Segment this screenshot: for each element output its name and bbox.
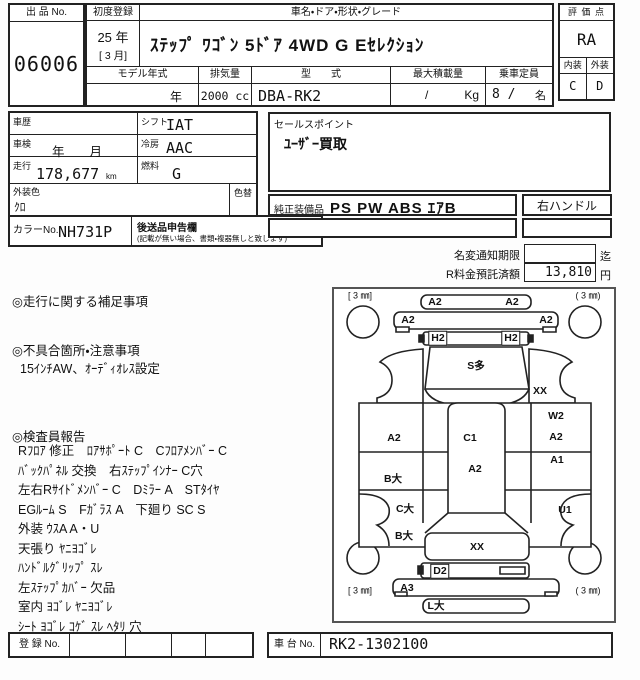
history-cell: 車歴 <box>10 113 138 135</box>
fuel-label: 燃料 <box>141 159 159 172</box>
color-no-label: カラーNo. <box>13 221 59 236</box>
damage-code: A2 <box>428 297 441 308</box>
damage-code: L大 <box>428 601 445 612</box>
damage-code: S多 <box>467 361 485 372</box>
fuel-value: G <box>172 165 181 183</box>
inspector-line: 外装 ｳｽA A・U <box>18 520 227 540</box>
mileage-value: 178,677 <box>36 165 99 183</box>
damage-code: A2 <box>539 315 552 326</box>
aircon-value: AAC <box>166 139 193 157</box>
name-change-suffix: 迄 <box>600 248 611 264</box>
registration-no-empty-cell <box>206 634 252 656</box>
damage-code: A2 <box>468 464 481 475</box>
sales-point-label: セールスポイント <box>274 116 354 131</box>
exhibit-no-box: 出 品 No. 06006 <box>8 3 85 107</box>
recycle-fee-value: 13,810 <box>524 263 596 282</box>
damage-code: XX <box>470 542 484 553</box>
max-load-value: / Kg <box>391 84 486 105</box>
registration-no-box: 登 録 No. <box>8 632 254 658</box>
inspector-line: 室内 ﾖｺﾞﾚ ﾔﾆﾖｺﾞﾚ <box>18 598 227 618</box>
displacement-value: 2000 cc <box>199 84 252 105</box>
model-year-label: モデル年式 <box>87 67 199 84</box>
vehicle-header-table: 初度登録 車名・ドア・形状・グレード 25 年 [ 3 月] ｽﾃｯﾌﾟ ﾜｺﾞ… <box>85 3 554 107</box>
history-label: 車歴 <box>13 115 31 128</box>
handle-box: 右ハンドル <box>522 194 612 216</box>
recycle-fee-unit: 円 <box>600 267 611 283</box>
fuel-cell: 燃料 G <box>138 157 256 184</box>
equipment-empty-box <box>268 218 517 238</box>
mileage-label: 走行 <box>13 159 31 172</box>
damage-code: A2 <box>505 297 518 308</box>
interior-grade: C <box>560 74 587 99</box>
driving-notes-title: ◎走行に関する補足事項 <box>12 291 148 310</box>
damage-code: A2 <box>387 433 400 444</box>
inspection-label: 車検 <box>13 137 31 150</box>
aircon-label: 冷房 <box>141 137 159 150</box>
name-change-label: 名変通知期限 <box>398 247 520 263</box>
damage-code: B大 <box>395 531 413 542</box>
sales-point-box: セールスポイント ﾕｰｻﾞｰ買取 <box>268 112 611 192</box>
max-load-label: 最大積載量 <box>391 67 486 84</box>
car-outline-drawing <box>334 289 614 621</box>
exterior-label: 外装 <box>587 58 614 74</box>
grade-label: 評 価 点 <box>560 5 613 21</box>
max-load-unit: Kg <box>464 88 479 105</box>
max-load-slash: / <box>425 88 428 105</box>
model-year-value: 年 <box>87 84 199 105</box>
color-no-cell: カラーNo. NH731P <box>10 217 132 245</box>
damage-code: A3 <box>400 583 413 594</box>
exterior-color-value: ｸﾛ <box>14 199 26 215</box>
grade-score: RA <box>560 21 613 58</box>
damage-code: C1 <box>463 433 476 444</box>
inspector-line: 左右Rｻｲﾄﾞﾒﾝﾊﾞｰ C Dﾐﾗｰ A STﾀｲﾔ <box>18 481 227 501</box>
inspector-line: 天張り ﾔﾆﾖｺﾞﾚ <box>18 540 227 560</box>
inspector-line: 左ｽﾃｯﾌﾟｶﾊﾞｰ 欠品 <box>18 579 227 599</box>
late-items-label: 後送品申告欄 <box>137 219 197 234</box>
first-registration-month: [ 3 月] <box>87 48 139 63</box>
shift-cell: シフト IAT <box>138 113 256 135</box>
inspector-line: EGﾙｰﾑ S Fｶﾞﾗｽ A 下廻り SC S <box>18 501 227 521</box>
auction-sheet: 出 品 No. 06006 初度登録 車名・ドア・形状・グレード 25 年 [ … <box>0 0 640 680</box>
exhibit-no-value: 06006 <box>10 22 83 105</box>
damage-code: C大 <box>396 504 414 515</box>
damage-code: A1 <box>550 455 563 466</box>
capacity-unit: 名 <box>535 87 546 105</box>
vehicle-name-label: 車名・ドア・形状・グレード <box>140 5 552 21</box>
shift-label: シフト <box>141 115 168 128</box>
first-registration-cell: 25 年 [ 3 月] <box>87 21 140 67</box>
exterior-color-cell: 外装色 ｸﾛ <box>10 184 230 215</box>
equipment-value: PS PW ABS ｴｱB <box>330 197 457 218</box>
defect-notes-title: ◎不具合箇所・注意事項 <box>12 340 140 359</box>
equipment-box: 純正装備品 PS PW ABS ｴｱB <box>268 194 517 216</box>
mileage-unit: km <box>106 172 117 181</box>
recycle-fee-label: R料金預託済額 <box>398 266 520 282</box>
inspector-report-lines: Rﾌﾛｱ 修正 ﾛｱｻﾎﾟｰﾄ C Cﾌﾛｱﾒﾝﾊﾞｰ C ﾊﾞｯｸﾊﾟﾈﾙ 交… <box>18 442 227 637</box>
damage-code: XX <box>533 386 547 397</box>
damage-code: A2 <box>401 315 414 326</box>
damage-diagram: [ 3 ㎜] ( 3 ㎜) [ 3 ㎜] ( 3 ㎜) A2 A2 A2 A2 … <box>332 287 616 623</box>
grade-box: 評 価 点 RA 内装 外装 C D <box>558 3 615 101</box>
color-no-value: NH731P <box>58 223 112 241</box>
damage-code-boxed: H2 <box>428 331 447 346</box>
damage-code-boxed: D2 <box>430 564 449 579</box>
damage-code: U1 <box>558 505 571 516</box>
first-registration-label: 初度登録 <box>87 5 140 21</box>
registration-no-empty-cell <box>172 634 206 656</box>
inspector-line: ﾊﾝﾄﾞﾙｸﾞﾘｯﾌﾟ ｽﾚ <box>18 559 227 579</box>
capacity-number: 8 / <box>492 87 515 105</box>
handle-empty-box <box>522 218 612 238</box>
inspection-cell: 車検 年 月 <box>10 135 138 157</box>
sales-point-value: ﾕｰｻﾞｰ買取 <box>284 134 347 154</box>
shift-value: IAT <box>166 116 193 134</box>
tire-depth-front-left: [ 3 ㎜] <box>348 289 372 302</box>
chassis-no-value: RK2-1302100 <box>321 634 611 656</box>
registration-no-empty-cell <box>126 634 172 656</box>
tire-depth-rear-left: [ 3 ㎜] <box>348 584 372 597</box>
aircon-cell: 冷房 AAC <box>138 135 256 157</box>
registration-no-empty-cell <box>70 634 126 656</box>
inspector-line: Rﾌﾛｱ 修正 ﾛｱｻﾎﾟｰﾄ C Cﾌﾛｱﾒﾝﾊﾞｰ C <box>18 442 227 462</box>
exterior-grade: D <box>587 74 614 99</box>
displacement-label: 排気量 <box>199 67 252 84</box>
registration-no-label: 登 録 No. <box>10 634 70 656</box>
tire-depth-rear-right: ( 3 ㎜) <box>575 584 600 597</box>
interior-label: 内装 <box>560 58 587 74</box>
tire-depth-front-right: ( 3 ㎜) <box>575 289 600 302</box>
damage-code: A2 <box>549 432 562 443</box>
exhibit-no-label: 出 品 No. <box>10 5 83 22</box>
equipment-label: 純正装備品 <box>274 201 324 216</box>
color-change-cell: 色替 <box>230 184 256 215</box>
damage-code: W2 <box>548 411 564 422</box>
chassis-no-box: 車 台 No. RK2-1302100 <box>267 632 613 658</box>
name-change-box <box>524 244 596 263</box>
inspector-line: ﾊﾞｯｸﾊﾟﾈﾙ 交換 右ｽﾃｯﾌﾟｲﾝﾅｰ C穴 <box>18 462 227 482</box>
damage-code-boxed: H2 <box>501 331 520 346</box>
capacity-label: 乗車定員 <box>486 67 552 84</box>
capacity-value: 8 / 名 <box>486 84 552 105</box>
defect-notes-line: 15ｲﾝﾁAW、ｵｰﾃﾞｨｵﾚｽ設定 <box>20 358 160 377</box>
mileage-cell: 走行 178,677 km <box>10 157 138 184</box>
chassis-no-label: 車 台 No. <box>269 634 321 656</box>
damage-code: B大 <box>384 474 402 485</box>
late-items-note: (記載が無い場合、書類・複器無しと致します) <box>137 233 287 244</box>
exterior-color-label: 外装色 <box>13 185 40 198</box>
model-code-value: DBA-RK2 <box>252 84 391 105</box>
first-registration-year: 25 年 <box>87 27 139 46</box>
vehicle-name-value: ｽﾃｯﾌﾟ ﾜｺﾞﾝ 5ﾄﾞｱ 4WD G Eｾﾚｸｼｮﾝ <box>140 21 552 67</box>
detail-table: 車歴 シフト IAT 車検 年 月 冷房 AAC 走行 178,677 km 燃… <box>8 111 258 217</box>
model-code-label: 型 式 <box>252 67 391 84</box>
